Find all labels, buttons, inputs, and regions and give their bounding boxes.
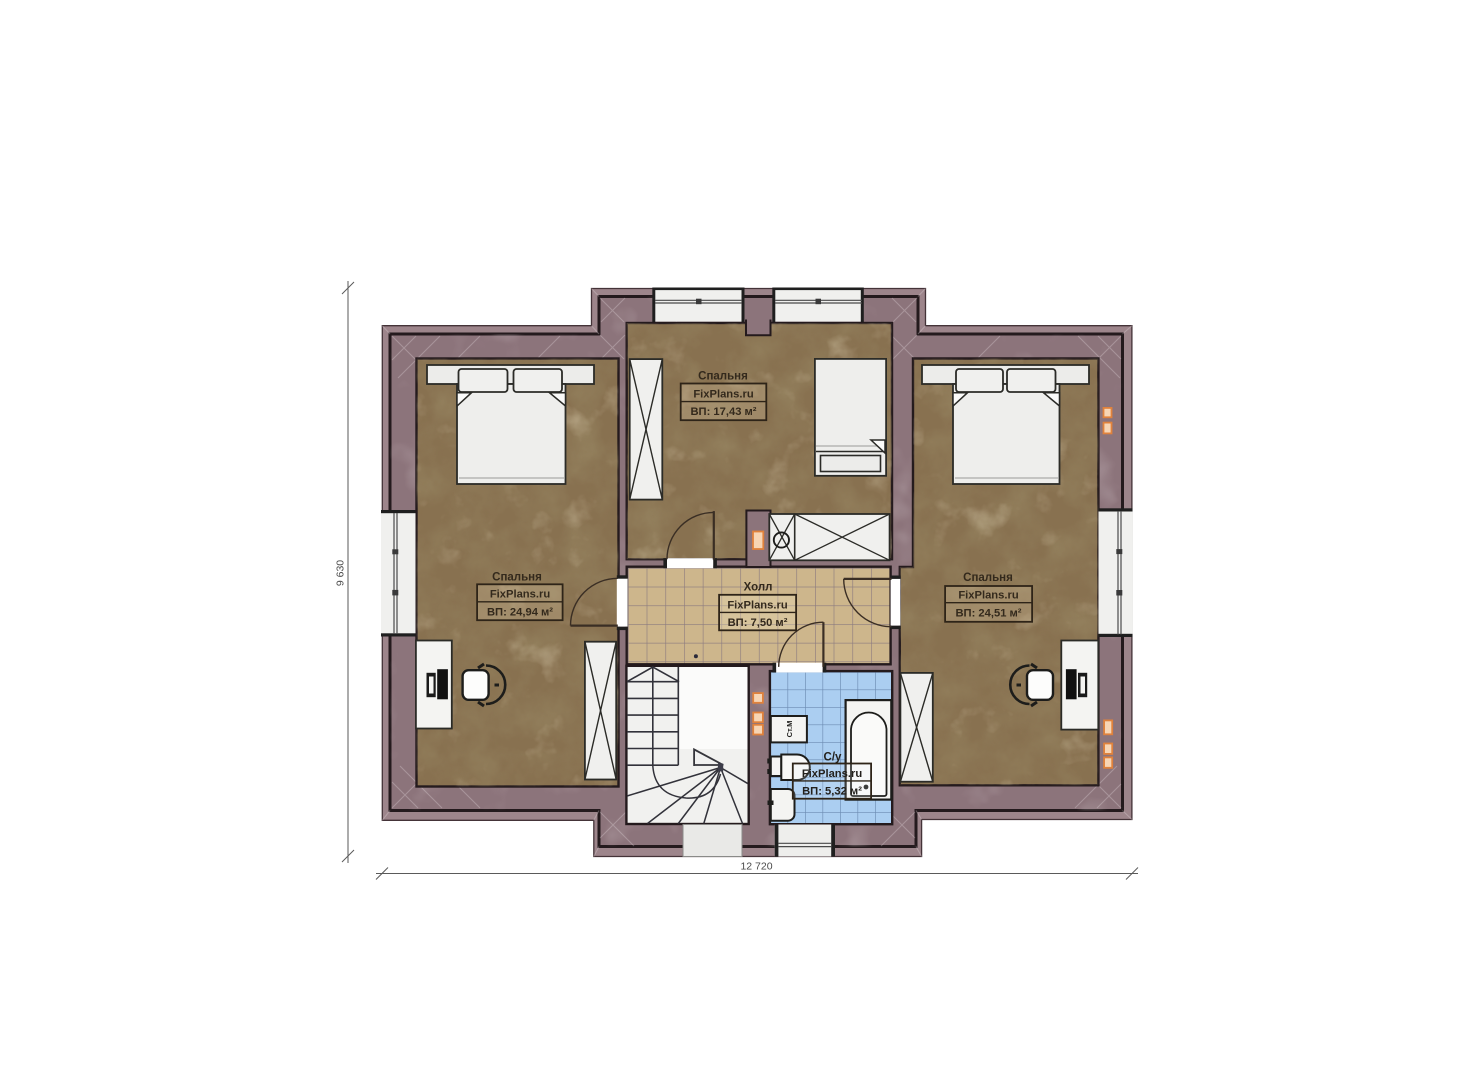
svg-text:FixPlans.ru: FixPlans.ru — [958, 590, 1018, 602]
svg-text:ВП: 7,50 м²: ВП: 7,50 м² — [728, 617, 788, 629]
svg-text:12 720: 12 720 — [740, 861, 772, 873]
svg-text:С/у: С/у — [824, 752, 843, 764]
svg-text:FixPlans.ru: FixPlans.ru — [693, 388, 753, 400]
svg-text:FixPlans.ru: FixPlans.ru — [727, 599, 787, 611]
svg-text:Холл: Холл — [744, 582, 773, 594]
svg-text:Спальня: Спальня — [963, 572, 1013, 584]
svg-text:ВП: 17,43 м²: ВП: 17,43 м² — [690, 406, 756, 418]
svg-text:9 630: 9 630 — [335, 560, 347, 586]
svg-text:ВП: 5,32 м²: ВП: 5,32 м² — [802, 785, 862, 797]
svg-text:Спальня: Спальня — [492, 572, 542, 584]
svg-text:ВП: 24,51 м²: ВП: 24,51 м² — [955, 607, 1021, 619]
svg-text:FixPlans.ru: FixPlans.ru — [490, 589, 550, 601]
svg-text:FixPlans.ru: FixPlans.ru — [802, 768, 862, 780]
svg-text:Ст.М: Ст.М — [785, 721, 794, 738]
svg-text:Спальня: Спальня — [698, 370, 748, 382]
svg-text:ВП: 24,94 м²: ВП: 24,94 м² — [487, 606, 553, 618]
